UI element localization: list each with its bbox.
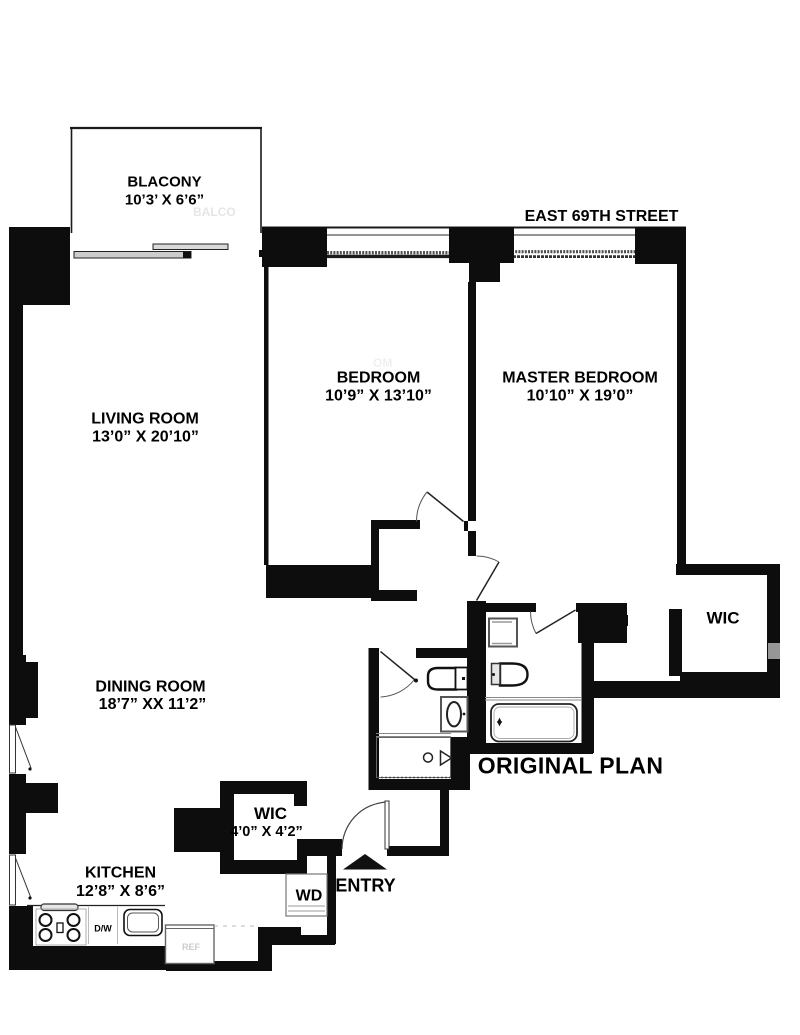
svg-text:BEDROOM: BEDROOM [337,370,421,387]
svg-text:12’8” X 8’6”: 12’8” X 8’6” [76,883,165,900]
svg-text:10’10” X 19’0”: 10’10” X 19’0” [527,388,634,405]
svg-text:10’3’ X 6’6”: 10’3’ X 6’6” [125,192,204,209]
svg-text:ENTRY: ENTRY [335,876,395,896]
svg-text:KITCHEN: KITCHEN [85,865,156,882]
svg-text:4’0” X 4’2”: 4’0” X 4’2” [230,824,303,840]
svg-text:ORIGINAL PLAN: ORIGINAL PLAN [478,753,664,779]
svg-text:WD: WD [296,888,323,905]
svg-text:WIC: WIC [254,804,287,823]
svg-text:D/W: D/W [94,924,112,934]
svg-text:DINING ROOM: DINING ROOM [95,679,205,696]
svg-text:13’0” X 20’10”: 13’0” X 20’10” [92,429,199,446]
svg-text:WIC: WIC [706,609,739,628]
svg-text:10’9” X 13’10”: 10’9” X 13’10” [325,388,432,405]
svg-text:MASTER BEDROOM: MASTER BEDROOM [502,370,658,387]
svg-text:18’7” XX 11’2”: 18’7” XX 11’2” [99,696,207,713]
svg-text:BLACONY: BLACONY [127,174,201,191]
svg-text:OM: OM [373,356,392,370]
svg-text:LIVING ROOM: LIVING ROOM [91,411,199,428]
svg-text:REF: REF [182,942,201,952]
svg-text:EAST 69TH STREET: EAST 69TH STREET [525,208,679,225]
